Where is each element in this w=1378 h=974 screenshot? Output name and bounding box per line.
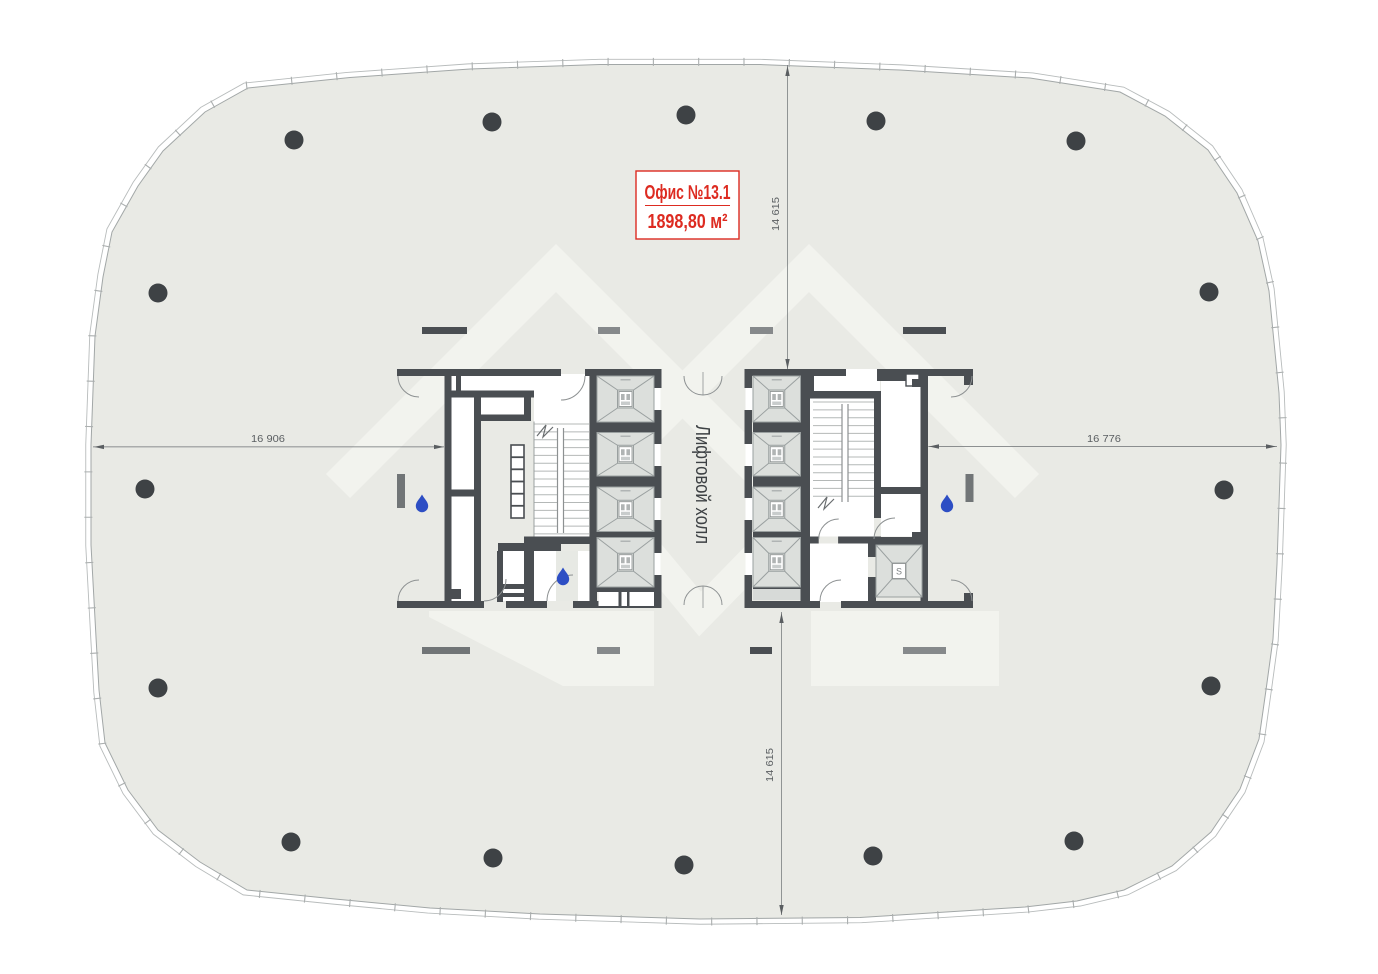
svg-text:14 615: 14 615 [765, 748, 776, 782]
svg-text:Лифтовой холл: Лифтовой холл [691, 425, 713, 544]
svg-text:S: S [896, 567, 902, 577]
svg-text:14 615: 14 615 [771, 197, 782, 231]
svg-text:16 906: 16 906 [251, 434, 285, 445]
svg-text:Офис №13.1: Офис №13.1 [645, 182, 731, 204]
svg-text:1898,80 м²: 1898,80 м² [648, 211, 728, 233]
svg-text:16 776: 16 776 [1087, 434, 1121, 445]
